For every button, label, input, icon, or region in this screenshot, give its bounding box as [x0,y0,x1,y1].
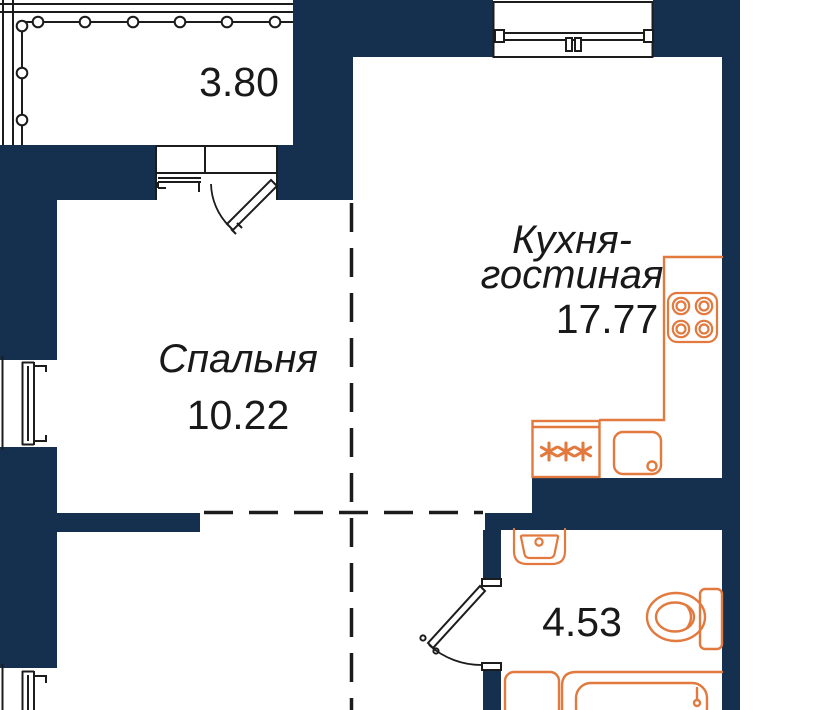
fridge-stars [542,443,591,460]
wall-segment [483,670,501,710]
hall-window-icon [3,664,47,710]
wall-segment [293,0,493,57]
bathroom-door-icon [420,579,501,670]
kitchen-window-icon [494,2,654,57]
toilet-icon [647,589,722,649]
wall-segment [278,145,293,200]
wall-segment [57,513,200,532]
stove-icon [668,293,717,342]
kitchen-living-name-line2: гостиная [481,253,664,297]
bathroom-sink-icon [514,529,565,564]
wall-segment [653,0,740,57]
fridge-icon [533,421,600,477]
wall-segment [0,447,57,668]
bedroom-window-icon [3,356,47,450]
floor-plan-svg: 3.80 Кухня- гостиная 17.77 Спальня 10.22… [0,0,813,710]
balcony-area-label: 3.80 [199,59,279,105]
wall-segment [293,57,353,200]
wall-segment [532,478,740,530]
washing-machine-icon [505,672,559,710]
kitchen-living-area-label: 17.77 [556,296,659,342]
wall-segment [722,57,740,710]
wall-segment [483,530,501,580]
bathroom-area-label: 4.53 [542,599,622,645]
kitchen-sink-icon [614,432,661,474]
bathtub-icon [562,672,722,710]
wall-segment [485,513,532,530]
walls-layer [0,0,740,710]
balcony-door-icon [155,145,278,234]
wall-segment [0,200,57,360]
bedroom-area-label: 10.22 [187,392,290,438]
bedroom-name-label: Спальня [158,337,318,381]
wall-segment [0,145,155,200]
floor-plan: 3.80 Кухня- гостиная 17.77 Спальня 10.22… [0,0,813,710]
